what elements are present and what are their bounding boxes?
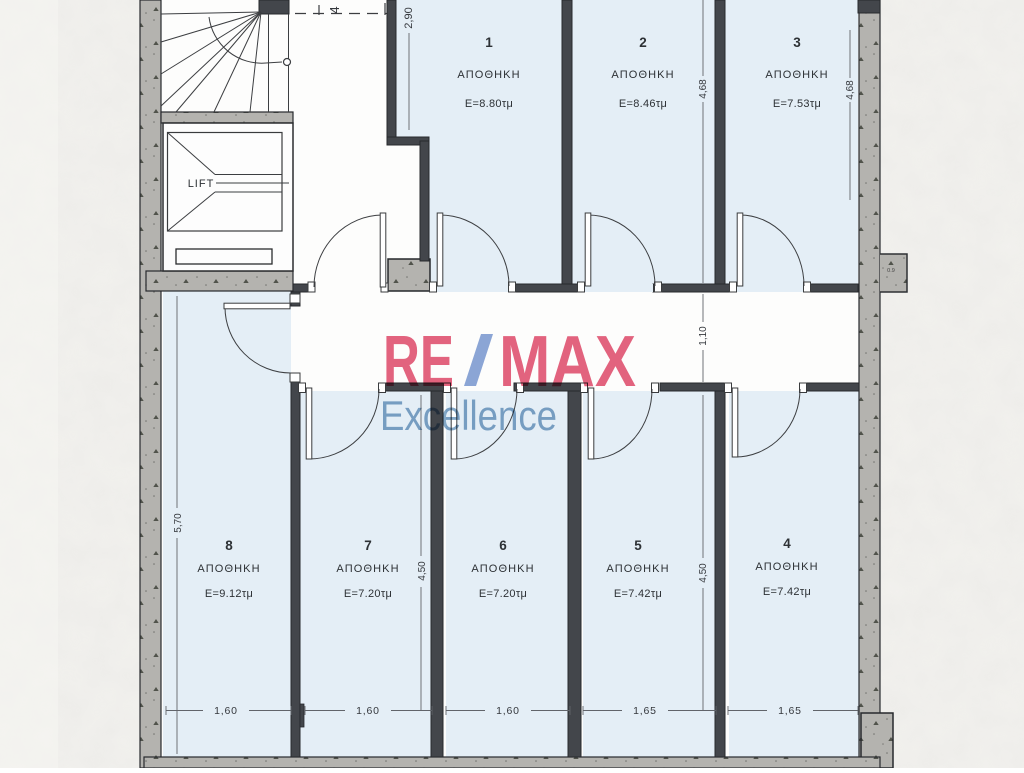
svg-text:5,70: 5,70: [173, 513, 184, 533]
svg-text:3: 3: [793, 35, 801, 50]
svg-text:ΑΠΟΘΗΚΗ: ΑΠΟΘΗΚΗ: [457, 69, 520, 81]
svg-text:ΑΠΟΘΗΚΗ: ΑΠΟΘΗΚΗ: [611, 69, 674, 81]
svg-text:E=9.12τμ: E=9.12τμ: [205, 588, 253, 600]
svg-text:1,60: 1,60: [214, 705, 238, 717]
svg-text:4: 4: [783, 536, 791, 551]
svg-text:1,65: 1,65: [778, 705, 802, 717]
svg-text:4,68: 4,68: [698, 79, 709, 99]
svg-text:Excellence: Excellence: [380, 392, 557, 439]
svg-text:4,50: 4,50: [698, 563, 709, 583]
svg-text:E=8.80τμ: E=8.80τμ: [465, 98, 513, 110]
svg-text:E=7.20τμ: E=7.20τμ: [344, 588, 392, 600]
svg-text:ΑΠΟΘΗΚΗ: ΑΠΟΘΗΚΗ: [471, 563, 534, 575]
svg-text:ΑΠΟΘΗΚΗ: ΑΠΟΘΗΚΗ: [606, 563, 669, 575]
svg-text:0.9: 0.9: [887, 268, 895, 274]
svg-text:ΑΠΟΘΗΚΗ: ΑΠΟΘΗΚΗ: [755, 561, 818, 573]
svg-text:5: 5: [634, 538, 642, 553]
svg-text:E=7.42τμ: E=7.42τμ: [614, 588, 662, 600]
svg-text:E=7.42τμ: E=7.42τμ: [763, 586, 811, 598]
svg-text:4,50: 4,50: [417, 561, 428, 581]
svg-text:1: 1: [485, 35, 493, 50]
svg-text:RE: RE: [383, 322, 454, 402]
svg-text:1,60: 1,60: [496, 705, 520, 717]
svg-text:1,60: 1,60: [356, 705, 380, 717]
svg-text:E=8.46τμ: E=8.46τμ: [619, 98, 667, 110]
svg-text:MAX: MAX: [499, 322, 636, 402]
svg-text:1,10: 1,10: [698, 326, 709, 346]
svg-text:E=7.53τμ: E=7.53τμ: [773, 98, 821, 110]
svg-text:ΑΠΟΘΗΚΗ: ΑΠΟΘΗΚΗ: [765, 69, 828, 81]
svg-text:1,65: 1,65: [633, 705, 657, 717]
svg-text:ΑΠΟΘΗΚΗ: ΑΠΟΘΗΚΗ: [336, 563, 399, 575]
svg-text:LIFT: LIFT: [188, 178, 215, 190]
svg-text:8: 8: [225, 538, 233, 553]
svg-text:4: 4: [327, 6, 342, 13]
svg-text:2: 2: [639, 35, 647, 50]
svg-text:ΑΠΟΘΗΚΗ: ΑΠΟΘΗΚΗ: [197, 563, 260, 575]
svg-text:7: 7: [364, 538, 372, 553]
svg-text:E=7.20τμ: E=7.20τμ: [479, 588, 527, 600]
svg-text:2,90: 2,90: [403, 7, 415, 28]
svg-text:4,68: 4,68: [845, 80, 856, 100]
svg-text:6: 6: [499, 538, 507, 553]
